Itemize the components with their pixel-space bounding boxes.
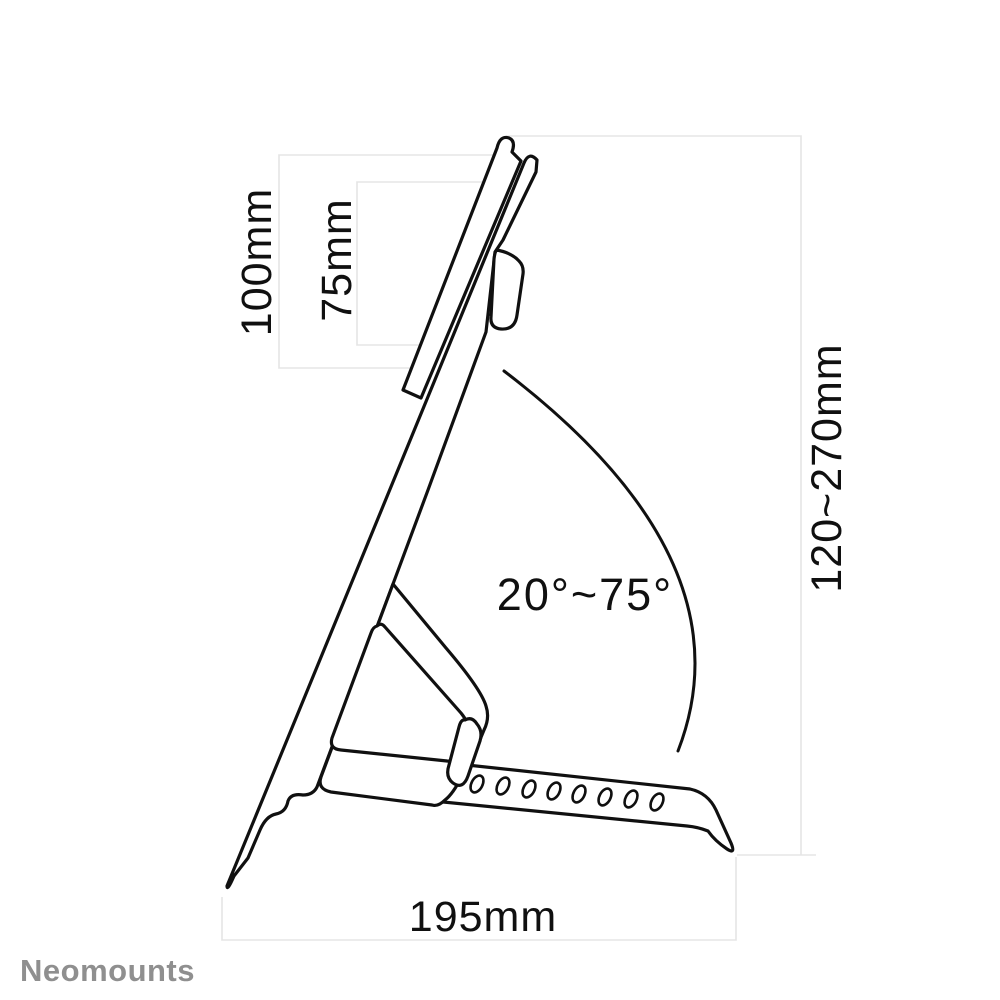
dimension-drawing-page: 100mm 75mm 120~270mm 20°~75° 195mm Neomo…: [0, 0, 1000, 1000]
label-vesa-inner: 75mm: [313, 198, 361, 321]
stand-drawing: [227, 137, 733, 887]
label-vesa-outer: 100mm: [233, 188, 281, 336]
diagram-canvas: 100mm 75mm 120~270mm 20°~75° 195mm Neomo…: [0, 0, 1000, 1000]
label-base-depth: 195mm: [409, 893, 557, 941]
label-height-range: 120~270mm: [803, 343, 851, 592]
label-tilt-range: 20°~75°: [497, 569, 673, 620]
vesa-mount-boss: [491, 250, 523, 329]
dimension-bracket-height-range: [506, 136, 816, 855]
tilt-range-arc: [504, 371, 695, 751]
dimension-lines: [222, 136, 816, 940]
brand-logo: Neomounts: [20, 953, 195, 988]
